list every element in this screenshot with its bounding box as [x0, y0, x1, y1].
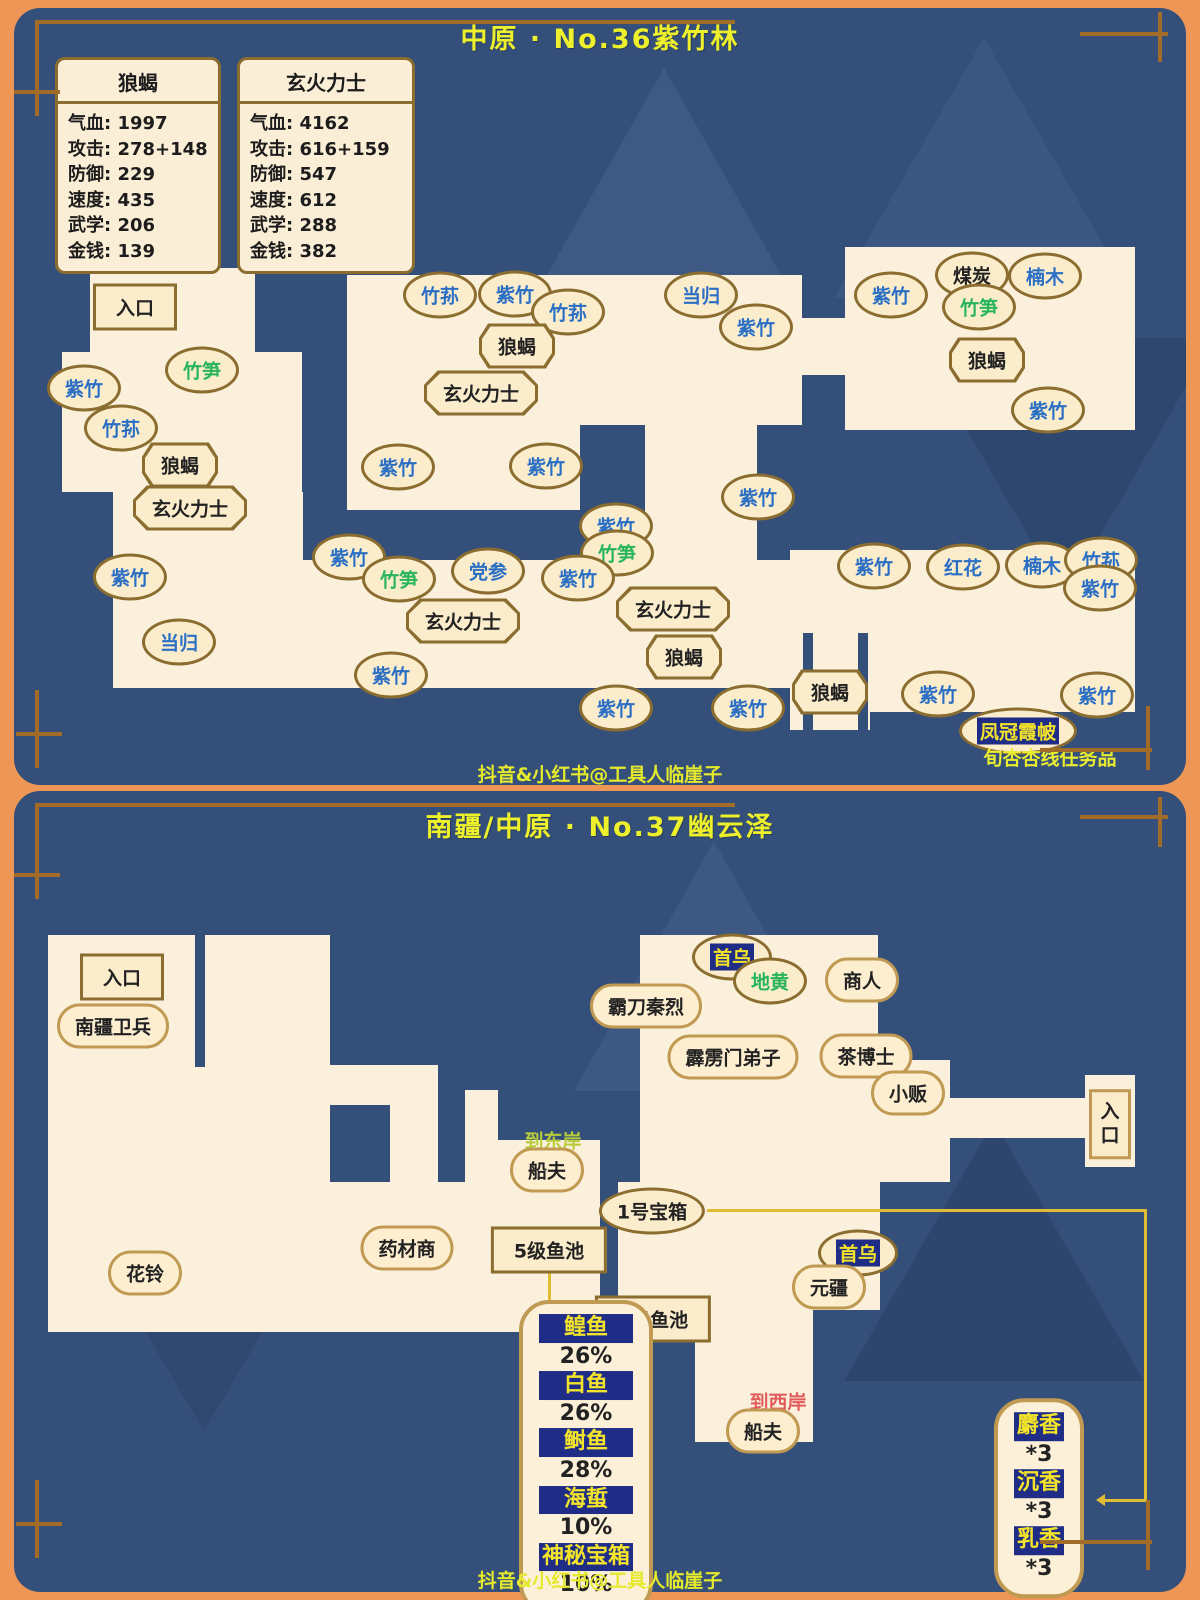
resource-label: 紫竹 — [1060, 672, 1134, 719]
monster-label: 狼蝎 — [479, 324, 555, 369]
item-name: 沉香 — [1014, 1469, 1064, 1498]
map-wall — [195, 935, 205, 1067]
monster-label-frame: 玄火力士 — [133, 486, 247, 531]
connector-arrow-icon — [1096, 1494, 1105, 1506]
fish-pool-contents-box: 鳇鱼26%白鱼26%鲥鱼28%海蜇10%神秘宝箱10% — [519, 1300, 653, 1600]
resource-label: 竹笋 — [165, 347, 239, 394]
npc-label: 霸刀秦烈 — [590, 984, 702, 1029]
corner-decoration — [35, 690, 39, 768]
resource-label: 紫竹 — [1063, 565, 1137, 612]
entrance-box: 入口 — [1089, 1089, 1131, 1159]
resource-label: 紫竹 — [541, 555, 615, 602]
monster-label: 狼蝎 — [646, 635, 722, 680]
map-area — [330, 1065, 390, 1105]
stat-row: 金钱: 139 — [68, 239, 208, 265]
item-value: 26% — [560, 1344, 613, 1369]
resource-label: 紫竹 — [721, 474, 795, 521]
resource-label: 紫竹 — [361, 444, 435, 491]
stat-row: 气血: 1997 — [68, 111, 208, 137]
resource-label: 紫竹 — [711, 685, 785, 732]
entrance-box: 入口 — [80, 954, 164, 1001]
item-value: 28% — [560, 1458, 613, 1483]
npc-label: 小贩 — [871, 1071, 945, 1116]
resource-label: 地黄 — [733, 958, 807, 1005]
monster-label-text: 狼蝎 — [952, 341, 1022, 380]
item-value: *3 — [1026, 1442, 1053, 1467]
stat-row: 武学: 206 — [68, 213, 208, 239]
corner-decoration — [16, 732, 62, 736]
map-area — [390, 1065, 438, 1182]
monster-label-frame: 玄火力士 — [424, 371, 538, 416]
fish-pool-contents-box-row: 白鱼26% — [539, 1371, 633, 1428]
monster-label-text: 玄火力士 — [409, 602, 517, 641]
item-value: *3 — [1026, 1499, 1053, 1524]
treasure-reward-box-row: 沉香*3 — [1014, 1469, 1064, 1526]
fish-pool-contents-box-row: 鲥鱼28% — [539, 1428, 633, 1485]
item-value: 26% — [560, 1401, 613, 1426]
panel2-watermark: 抖音&小红书@工具人临崖子 — [0, 1566, 1200, 1593]
monster-label-frame: 狼蝎 — [949, 338, 1025, 383]
map-guide-stage: 中原 · No.36紫竹林 南疆/中原 · No.37幽云泽 抖音&小红书@工具… — [0, 0, 1200, 1600]
monster-label-frame: 玄火力士 — [616, 587, 730, 632]
item-name: 鳇鱼 — [539, 1314, 633, 1343]
resource-label: 紫竹 — [1011, 387, 1085, 434]
connector-line — [1104, 1499, 1146, 1502]
monster-label: 玄火力士 — [616, 587, 730, 632]
resource-label: 紫竹 — [719, 304, 793, 351]
map-area — [800, 318, 850, 375]
entrance-box: 5级鱼池 — [491, 1227, 607, 1274]
entrance-box: 入口 — [93, 284, 177, 331]
stat-row: 攻击: 616+159 — [250, 137, 402, 163]
panel1-title: 中原 · No.36紫竹林 — [0, 17, 1200, 56]
monster-label-text: 狼蝎 — [649, 638, 719, 677]
corner-decoration — [35, 1480, 39, 1558]
monster-label-text: 玄火力士 — [619, 590, 727, 629]
resource-label: 红花 — [926, 544, 1000, 591]
monster-label: 狼蝎 — [792, 670, 868, 715]
monster-label-text: 狼蝎 — [145, 446, 215, 485]
connector-line — [1144, 1209, 1147, 1502]
resource-label: 紫竹 — [854, 272, 928, 319]
map-area — [918, 1098, 1088, 1138]
resource-label: 紫竹 — [509, 443, 583, 490]
monster-label-text: 玄火力士 — [427, 374, 535, 413]
stat-card-title: 狼蝎 — [58, 60, 218, 104]
background-triangle — [534, 68, 794, 298]
fish-pool-contents-box-row: 海蜇10% — [539, 1486, 633, 1543]
monster-label-frame: 玄火力士 — [406, 599, 520, 644]
monster-label-frame: 狼蝎 — [792, 670, 868, 715]
corner-decoration — [14, 90, 60, 94]
stat-row: 武学: 288 — [250, 213, 402, 239]
npc-label: 药材商 — [360, 1226, 453, 1271]
corner-decoration — [14, 873, 60, 877]
npc-label: 船夫 — [510, 1148, 584, 1193]
stat-row: 速度: 435 — [68, 188, 208, 214]
resource-label: 紫竹 — [579, 685, 653, 732]
resource-label: 紫竹 — [901, 671, 975, 718]
item-name: 白鱼 — [539, 1371, 633, 1400]
fish-pool-contents-box-row: 鳇鱼26% — [539, 1314, 633, 1371]
monster-label-text: 狼蝎 — [795, 673, 865, 712]
resource-label: 紫竹 — [837, 543, 911, 590]
monster-stat-card: 狼蝎气血: 1997攻击: 278+148防御: 229速度: 435武学: 2… — [55, 57, 221, 274]
stat-row: 气血: 4162 — [250, 111, 402, 137]
panel2-title: 南疆/中原 · No.37幽云泽 — [0, 805, 1200, 844]
connector-line — [707, 1209, 1147, 1212]
monster-label: 狼蝎 — [142, 443, 218, 488]
stat-row: 金钱: 382 — [250, 239, 402, 265]
npc-label: 南疆卫兵 — [57, 1004, 169, 1049]
monster-label: 玄火力士 — [133, 486, 247, 531]
stat-card-rows: 气血: 4162攻击: 616+159防御: 547速度: 612武学: 288… — [240, 104, 412, 271]
monster-label: 玄火力士 — [424, 371, 538, 416]
item-value: 10% — [560, 1515, 613, 1540]
treasure-reward-box-row: 麝香*3 — [1014, 1412, 1064, 1469]
highlighted-item-label: 首乌 — [836, 1240, 880, 1267]
monster-label-frame: 狼蝎 — [646, 635, 722, 680]
npc-label: 花铃 — [108, 1251, 182, 1296]
monster-label-text: 玄火力士 — [136, 489, 244, 528]
monster-label-frame: 狼蝎 — [479, 324, 555, 369]
stat-row: 速度: 612 — [250, 188, 402, 214]
corner-decoration — [1146, 1500, 1150, 1570]
monster-label: 玄火力士 — [406, 599, 520, 644]
stat-card-title: 玄火力士 — [240, 60, 412, 104]
resource-label: 竹笋 — [362, 556, 436, 603]
resource-label: 党参 — [451, 548, 525, 595]
panel1-watermark: 抖音&小红书@工具人临崖子 — [0, 760, 1200, 787]
resource-label: 当归 — [142, 619, 216, 666]
npc-label: 元疆 — [792, 1265, 866, 1310]
resource-label: 紫竹 — [93, 554, 167, 601]
stat-row: 攻击: 278+148 — [68, 137, 208, 163]
item-name: 麝香 — [1014, 1412, 1064, 1441]
corner-decoration — [1040, 1540, 1152, 1544]
resource-label: 竹笋 — [942, 284, 1016, 331]
monster-label-frame: 狼蝎 — [142, 443, 218, 488]
highlighted-item-label: 凤冠霞帔 — [977, 718, 1059, 745]
stat-card-rows: 气血: 1997攻击: 278+148防御: 229速度: 435武学: 206… — [58, 104, 218, 271]
resource-label: 楠木 — [1008, 253, 1082, 300]
npc-label: 商人 — [825, 958, 899, 1003]
monster-label: 狼蝎 — [949, 338, 1025, 383]
resource-label: 1号宝箱 — [599, 1188, 705, 1235]
stat-row: 防御: 547 — [250, 162, 402, 188]
resource-label: 紫竹 — [354, 652, 428, 699]
monster-stat-card: 玄火力士气血: 4162攻击: 616+159防御: 547速度: 612武学:… — [237, 57, 415, 274]
corner-decoration — [1040, 748, 1152, 752]
resource-label: 竹荪 — [403, 272, 477, 319]
npc-label: 船夫 — [726, 1409, 800, 1454]
item-name: 鲥鱼 — [539, 1428, 633, 1457]
npc-label: 霹雳门弟子 — [667, 1035, 798, 1080]
corner-decoration — [16, 1522, 62, 1526]
monster-label-text: 狼蝎 — [482, 327, 552, 366]
item-name: 海蜇 — [539, 1486, 633, 1515]
stat-row: 防御: 229 — [68, 162, 208, 188]
